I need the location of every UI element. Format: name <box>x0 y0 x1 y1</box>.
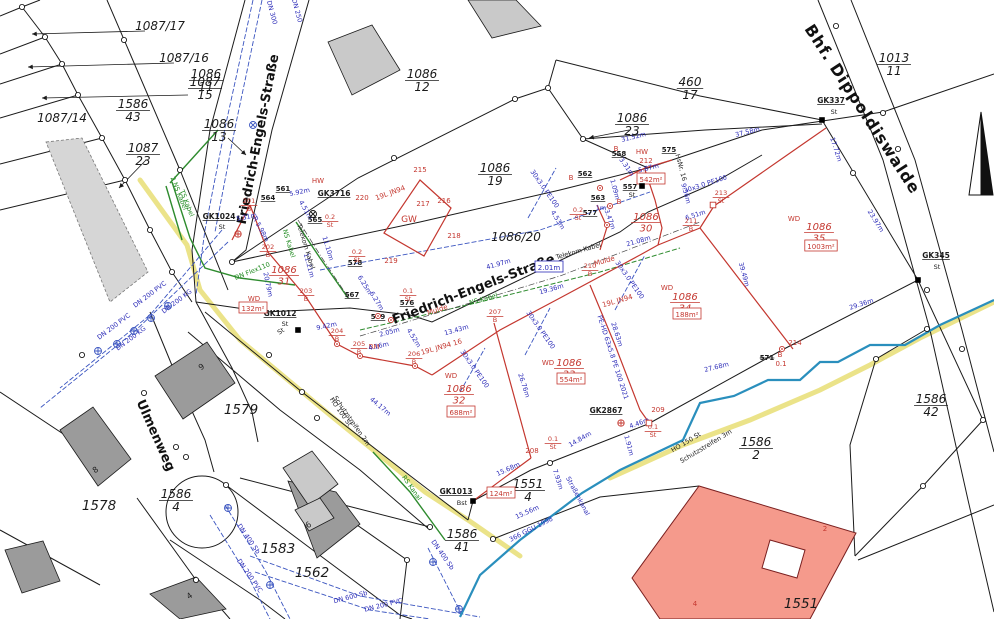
map-label: 30x3.0 PE100 <box>528 168 560 209</box>
area-box-label: 554m² <box>557 373 585 384</box>
map-label: 37.58m <box>734 125 760 139</box>
svg-text:0.1: 0.1 <box>403 287 413 295</box>
map-label: R 5.98m <box>251 215 271 243</box>
building-red-planned <box>632 486 856 619</box>
survey-dot-icon <box>597 185 602 190</box>
map-label: 14.84m <box>567 430 593 449</box>
map-label: 1087/16 <box>159 51 209 65</box>
marker-square-black-icon <box>295 327 301 333</box>
circle-point <box>75 92 80 97</box>
svg-text:124m²: 124m² <box>490 490 513 498</box>
svg-text:554m²: 554m² <box>560 376 583 384</box>
circle-point <box>99 135 104 140</box>
svg-text:St: St <box>327 221 334 229</box>
map-label: DN 300 <box>265 0 279 25</box>
map-label: 5.92m <box>289 186 311 198</box>
map-label: B <box>569 174 574 182</box>
svg-text:1086: 1086 <box>806 222 831 233</box>
area-box-label: 688m² <box>447 406 475 417</box>
svg-text:0.2: 0.2 <box>325 213 335 221</box>
manhole-icon <box>267 582 274 589</box>
svg-text:188m²: 188m² <box>676 311 699 319</box>
map-label: B <box>778 351 783 359</box>
manhole-icon <box>148 315 155 322</box>
map-label: 11.10m <box>320 235 335 261</box>
parcel-fraction-label: 15864 <box>159 487 193 514</box>
svg-text:1586: 1586 <box>741 435 772 449</box>
svg-text:213: 213 <box>715 189 727 197</box>
map-label: 1579 <box>224 402 258 418</box>
parcel-fraction-label: 46017 <box>677 75 703 102</box>
circle-point <box>183 454 188 459</box>
svg-text:202: 202 <box>262 243 274 251</box>
svg-text:204: 204 <box>331 327 343 335</box>
map-label: 7.93m <box>551 468 565 490</box>
circle-point <box>490 536 495 541</box>
map-label: 1578 <box>82 498 116 514</box>
map-label: 26.76m <box>516 372 531 398</box>
street-label: Bhf. Dippoldiswalde <box>801 21 925 198</box>
parcel-fraction-label: 158643 <box>116 97 150 124</box>
parcel-fraction-label: 108619 <box>478 161 512 188</box>
circle-point <box>223 482 228 487</box>
map-label: 1087/17 <box>135 19 185 33</box>
survey-dot-icon <box>375 313 380 318</box>
building <box>5 541 60 593</box>
map-label: DN 600 Sb <box>333 589 369 605</box>
map-label: 4.52m <box>405 327 423 349</box>
area-box-label: 132m² <box>239 302 267 313</box>
circle-point <box>193 577 198 582</box>
parcel-fraction-label: 204B <box>329 327 346 343</box>
parcel-fraction-label: 15862 <box>739 435 773 462</box>
circle-point <box>266 352 271 357</box>
svg-text:31: 31 <box>278 277 291 288</box>
circle-point <box>79 352 84 357</box>
map-label: 2 <box>823 525 827 533</box>
circle-point <box>547 460 552 465</box>
map-label: Straßenkanal <box>564 475 591 517</box>
map-label: 19L JN94 16 <box>420 337 463 357</box>
parcel-fraction-label: 158641 <box>445 527 479 554</box>
map-label: HW <box>312 177 324 185</box>
parcel-fraction-label: 210B <box>582 262 599 278</box>
parcel-fraction-label: 108723 <box>126 141 160 168</box>
svg-text:St: St <box>405 295 412 303</box>
survey-dot-icon <box>388 317 393 322</box>
map-label: 30x3.0 PE100 <box>524 309 556 350</box>
parcel-fraction-label: 101311 <box>877 51 911 78</box>
svg-text:B: B <box>247 205 251 213</box>
svg-text:203: 203 <box>300 287 312 295</box>
area-box-label: 188m² <box>673 308 701 319</box>
map-label: DN 200 PVC <box>132 279 169 309</box>
svg-text:1086: 1086 <box>446 384 471 395</box>
parcel-fraction-label: 158642 <box>914 392 948 419</box>
svg-text:688m²: 688m² <box>450 409 473 417</box>
svg-text:1086: 1086 <box>672 292 697 303</box>
svg-text:B: B <box>266 251 270 259</box>
svg-text:542m²: 542m² <box>640 176 663 184</box>
map-label: 1.09m <box>608 178 621 200</box>
map-label: NS Kabel <box>281 228 297 258</box>
map-label: 218 <box>447 232 460 240</box>
map-label: 2.05m <box>378 326 400 339</box>
svg-text:460: 460 <box>679 75 702 89</box>
svg-text:1086: 1086 <box>633 212 658 223</box>
circle-point <box>141 390 146 395</box>
map-label: Bst <box>457 499 468 507</box>
map-label: Mulde <box>593 254 616 268</box>
marker-square-black-icon <box>819 117 825 123</box>
map-label: GK337 <box>817 96 845 105</box>
parcel-fraction-label: 202B <box>260 243 277 259</box>
svg-text:B: B <box>304 295 308 303</box>
map-labels-layer: Friedrich-Engels-StraßeFriedrich-Engels-… <box>19 0 985 614</box>
svg-text:1086: 1086 <box>271 265 296 276</box>
svg-text:19: 19 <box>487 174 502 188</box>
svg-text:1086: 1086 <box>480 161 511 175</box>
map-label: St <box>629 191 636 199</box>
manhole-icon <box>165 303 172 310</box>
map-label: 1087/14 <box>37 111 87 125</box>
map-label: 19L JN94 <box>601 293 634 309</box>
manhole-icon <box>430 559 437 566</box>
map-label: 19L JN94 <box>374 184 407 202</box>
circle-point <box>833 23 838 28</box>
svg-text:207: 207 <box>489 308 501 316</box>
map-label: DN 250 <box>290 0 304 23</box>
svg-text:1086: 1086 <box>407 67 438 81</box>
circle-point <box>177 167 182 172</box>
parcel-fraction-label: 108632 <box>444 384 474 407</box>
map-label: B <box>614 145 619 153</box>
marker-square-white-icon <box>710 202 716 208</box>
map-label: 209 <box>651 406 664 414</box>
circle-point <box>404 557 409 562</box>
svg-text:1086: 1086 <box>204 117 235 131</box>
parcel-fraction-label: 0.1St <box>545 435 562 451</box>
svg-text:St: St <box>650 431 657 439</box>
map-label: 15.56m <box>514 503 540 520</box>
parcel-fraction-label: 108613 <box>202 117 236 144</box>
map-label: 219 <box>384 257 397 265</box>
map-label: HW <box>636 148 648 156</box>
svg-text:30: 30 <box>640 224 653 235</box>
svg-text:11: 11 <box>198 80 213 94</box>
svg-text:1003m²: 1003m² <box>807 243 835 251</box>
map-label: St <box>831 108 838 116</box>
parcel-fraction-label: 108612 <box>405 67 439 94</box>
svg-text:0.2: 0.2 <box>352 248 362 256</box>
svg-text:23: 23 <box>624 124 639 138</box>
map-label: 557 <box>623 183 638 191</box>
circle-point <box>19 4 24 9</box>
svg-text:1586: 1586 <box>118 97 149 111</box>
map-label: WD <box>445 372 457 380</box>
circle-point <box>173 444 178 449</box>
manhole-icon <box>131 328 138 335</box>
svg-text:0.2: 0.2 <box>573 206 583 214</box>
cadastral-map: Friedrich-Engels-StraßeFriedrich-Engels-… <box>0 0 994 619</box>
map-label: 563 <box>591 194 606 202</box>
area-box-label: 542m² <box>637 173 665 184</box>
map-label: 1086/20 <box>491 230 541 244</box>
survey-dot-icon <box>779 346 784 351</box>
circle-point <box>122 177 127 182</box>
map-label: 4 <box>693 600 698 608</box>
map-label: 39.49m <box>737 261 751 287</box>
parcel-fraction-label: 211B <box>683 217 700 233</box>
map-label: 1562 <box>295 565 329 581</box>
svg-text:11: 11 <box>886 64 901 78</box>
svg-text:2.01m: 2.01m <box>538 264 561 272</box>
map-label: St <box>219 223 226 231</box>
map-label: 1583 <box>261 541 295 557</box>
map-label: 13.43m <box>443 323 469 338</box>
svg-text:1013: 1013 <box>879 51 910 65</box>
parcel-fraction-label: 207B <box>487 308 504 324</box>
circle-point <box>59 61 64 66</box>
circle-point <box>314 415 319 420</box>
map-label: 575 <box>662 146 677 154</box>
survey-dot-icon <box>412 363 417 368</box>
manhole-icon <box>225 505 232 512</box>
map-label: 4.53m <box>549 209 567 231</box>
map-label: 564 <box>261 194 276 202</box>
svg-text:1086: 1086 <box>191 67 222 81</box>
map-label: HsNr. 16 <box>673 153 688 182</box>
svg-text:211: 211 <box>685 217 697 225</box>
manhole-icon <box>456 606 463 613</box>
circle-point <box>299 389 304 394</box>
map-label: DN 200 KG <box>114 324 147 352</box>
circle-point <box>980 417 985 422</box>
map-label: 44.17m <box>368 395 392 417</box>
map-label: 3.31m <box>617 156 635 178</box>
map-label: GK2867 <box>590 406 623 415</box>
map-label: 217 <box>416 200 429 208</box>
circle-point <box>42 34 47 39</box>
map-label: GK1013 <box>440 487 473 496</box>
svg-text:St: St <box>575 214 582 222</box>
svg-text:210: 210 <box>584 262 596 270</box>
circle-point <box>895 146 900 151</box>
map-label: DN 200 PVC <box>363 596 404 613</box>
map-label: St <box>934 263 941 271</box>
map-label: 1551 <box>784 596 818 612</box>
map-label: 17.72m <box>828 136 843 162</box>
svg-text:43: 43 <box>125 110 140 124</box>
circle-point <box>121 37 126 42</box>
survey-dot-icon <box>357 353 362 358</box>
svg-text:132m²: 132m² <box>242 305 265 313</box>
map-label: 19.36m <box>538 282 564 297</box>
circle-point <box>512 96 517 101</box>
map-label: GK3716 <box>318 189 351 198</box>
parcel-fraction-label: 108611 <box>189 67 223 94</box>
svg-text:201: 201 <box>243 197 255 205</box>
circle-point <box>850 170 855 175</box>
map-label: DN 400 Sb <box>235 522 261 555</box>
map-label: GK1024 <box>203 212 236 221</box>
manhole-icon <box>95 348 102 355</box>
svg-text:B: B <box>493 316 497 324</box>
svg-text:32: 32 <box>453 396 466 407</box>
map-label: 567 <box>345 291 360 299</box>
survey-dot-icon <box>607 203 612 208</box>
map-label: GK1012 <box>264 309 297 318</box>
svg-text:12: 12 <box>414 80 429 94</box>
marker-square-black-icon <box>639 183 645 189</box>
map-label: 562 <box>578 170 593 178</box>
circle-point <box>959 346 964 351</box>
svg-text:1087: 1087 <box>128 141 159 155</box>
circle-point <box>427 524 432 529</box>
area-box-label: 124m² <box>487 487 515 498</box>
map-label: 214 <box>788 339 802 347</box>
map-label: 366 GGU 1998 <box>508 515 554 544</box>
parcel-fraction-label: 15514 <box>511 477 545 504</box>
svg-text:23: 23 <box>135 154 150 168</box>
svg-text:1586: 1586 <box>447 527 478 541</box>
svg-text:B: B <box>588 270 592 278</box>
map-label: DN 200 KG <box>160 287 193 315</box>
svg-text:4: 4 <box>172 500 180 514</box>
map-label: GK345 <box>922 251 950 260</box>
circle-point <box>147 227 152 232</box>
map-label: DN 400 Sb <box>429 538 455 571</box>
svg-text:B: B <box>689 225 693 233</box>
svg-text:2: 2 <box>752 448 760 462</box>
svg-text:0.1: 0.1 <box>548 435 558 443</box>
svg-text:42: 42 <box>923 405 938 419</box>
circle-point <box>873 356 878 361</box>
north-arrow-icon <box>969 112 993 195</box>
map-label: 571 <box>760 354 775 362</box>
circle-point <box>229 259 234 264</box>
circle-point <box>580 136 585 141</box>
svg-text:1551: 1551 <box>513 477 544 491</box>
building <box>328 25 400 95</box>
map-label: WD <box>661 284 673 292</box>
svg-text:1086: 1086 <box>617 111 648 125</box>
building-hatched <box>46 138 148 302</box>
gk-circle-icon <box>235 231 241 237</box>
marker-square-black-icon <box>470 498 476 504</box>
parcel-fraction-label: 0.2St <box>322 213 339 229</box>
circle-point <box>920 483 925 488</box>
svg-text:206: 206 <box>408 350 420 358</box>
map-label: 208 <box>525 447 538 455</box>
gk-circle-icon <box>618 420 624 426</box>
map-label: 215 <box>413 166 426 174</box>
svg-text:St: St <box>354 256 361 264</box>
area-box-label: 1003m² <box>805 240 837 251</box>
marker-square-white-icon <box>646 420 652 426</box>
map-label: WD <box>542 359 554 367</box>
survey-dot-icon <box>604 222 609 227</box>
svg-text:1086: 1086 <box>556 358 581 369</box>
svg-text:205: 205 <box>353 340 365 348</box>
circle-point <box>169 269 174 274</box>
parcel-fraction-label: 108630 <box>631 212 661 235</box>
map-label: 6.27m <box>368 290 386 312</box>
map-label: St <box>282 320 289 328</box>
marker-square-black-icon <box>915 277 921 283</box>
manhole-icon <box>114 341 121 348</box>
map-label: 3.47m <box>603 208 618 230</box>
building <box>468 0 541 38</box>
area-box-label: 2.01m <box>535 261 563 272</box>
circle-point <box>880 110 885 115</box>
svg-text:17: 17 <box>682 88 698 102</box>
svg-text:13: 13 <box>211 130 226 144</box>
map-label: Telekom Kabel <box>554 241 602 262</box>
svg-text:1586: 1586 <box>916 392 947 406</box>
map-label: GW <box>401 215 417 225</box>
street-label: Ulmenweg <box>133 397 178 473</box>
svg-text:St: St <box>550 443 557 451</box>
circle-point <box>924 326 929 331</box>
svg-text:1586: 1586 <box>161 487 192 501</box>
svg-text:41: 41 <box>454 540 469 554</box>
map-label: 27.68m <box>703 360 729 374</box>
map-label: 220 <box>355 194 368 202</box>
parcel-fraction-label: 203B <box>298 287 315 303</box>
map-label: 216 <box>437 197 451 205</box>
svg-text:St: St <box>718 197 725 205</box>
circle-point <box>391 155 396 160</box>
survey-dot-icon <box>334 341 339 346</box>
map-label: 1.91m <box>622 434 635 456</box>
circle-point <box>924 287 929 292</box>
map-label: DN 200 PVC <box>235 557 264 594</box>
svg-text:4: 4 <box>524 490 532 504</box>
circle-point <box>545 85 550 90</box>
map-label: 21.08m <box>625 234 651 249</box>
map-canvas: Friedrich-Engels-StraßeFriedrich-Engels-… <box>0 0 994 619</box>
map-label: WD <box>788 215 800 223</box>
map-label: 0.1 <box>775 360 786 368</box>
